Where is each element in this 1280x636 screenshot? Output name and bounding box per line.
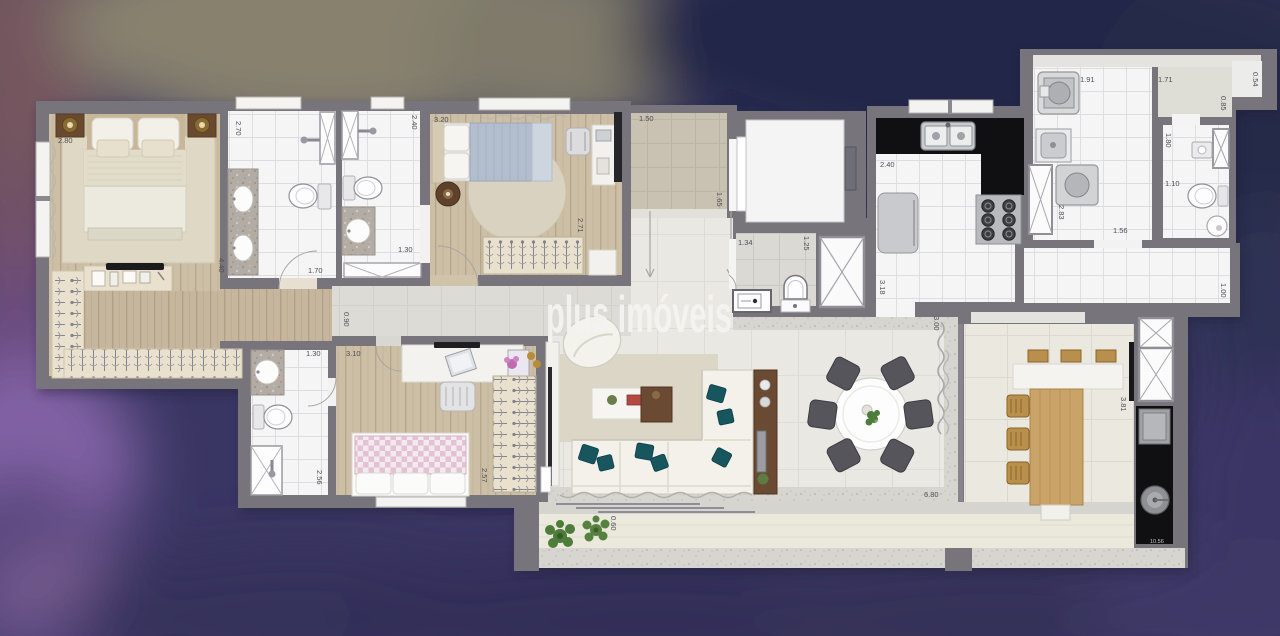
- svg-text:1.34: 1.34: [738, 238, 753, 247]
- svg-text:2.56: 2.56: [315, 470, 324, 485]
- svg-text:3.00: 3.00: [932, 316, 941, 331]
- svg-text:3.20: 3.20: [434, 115, 449, 124]
- svg-text:1.70: 1.70: [308, 266, 323, 275]
- svg-text:1.30: 1.30: [306, 349, 321, 358]
- svg-text:0.60: 0.60: [609, 516, 618, 531]
- svg-text:1.50: 1.50: [639, 114, 654, 123]
- svg-text:2.83: 2.83: [1057, 205, 1066, 220]
- svg-text:1.80: 1.80: [1164, 133, 1173, 148]
- svg-text:10.56: 10.56: [1150, 539, 1164, 545]
- svg-text:3.81: 3.81: [1119, 397, 1128, 412]
- svg-text:1.56: 1.56: [1113, 226, 1128, 235]
- svg-text:3.18: 3.18: [878, 280, 887, 295]
- svg-text:1.30: 1.30: [398, 245, 413, 254]
- svg-text:1.71: 1.71: [1158, 75, 1173, 84]
- svg-text:1.91: 1.91: [1080, 75, 1095, 84]
- svg-text:2.40: 2.40: [880, 160, 895, 169]
- svg-text:1.65: 1.65: [715, 192, 724, 207]
- svg-text:2.70: 2.70: [234, 121, 243, 136]
- svg-text:2.57: 2.57: [480, 468, 489, 483]
- svg-text:1.25: 1.25: [802, 236, 811, 251]
- svg-text:2.71: 2.71: [576, 218, 585, 233]
- svg-text:6.80: 6.80: [924, 490, 939, 499]
- svg-text:2.40: 2.40: [410, 115, 419, 130]
- svg-text:2.80: 2.80: [58, 136, 73, 145]
- svg-text:plus imóveis: plus imóveis: [546, 286, 732, 344]
- svg-text:3.10: 3.10: [346, 349, 361, 358]
- svg-text:0.85: 0.85: [1219, 96, 1228, 111]
- svg-text:1.10: 1.10: [1165, 179, 1180, 188]
- svg-text:0.54: 0.54: [1251, 72, 1260, 87]
- svg-text:1.00: 1.00: [1219, 283, 1228, 298]
- svg-text:0.90: 0.90: [342, 312, 351, 327]
- svg-text:4.40: 4.40: [217, 258, 226, 273]
